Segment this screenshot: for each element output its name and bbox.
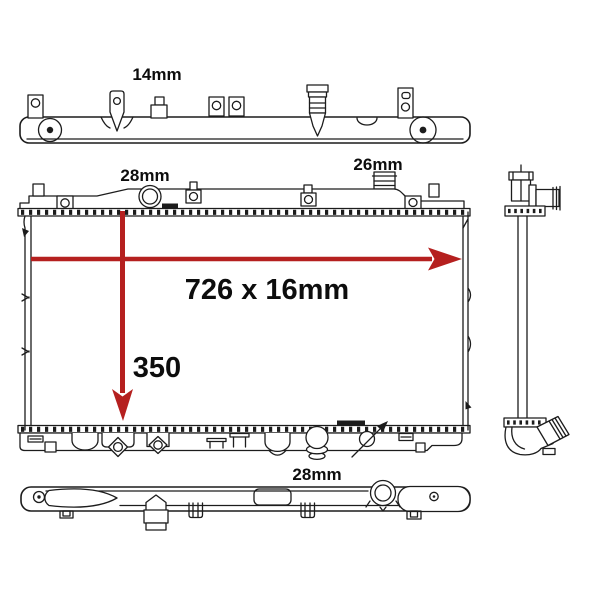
label-front-top-tank: 28mm [120,166,169,185]
bottom-view: 28mm [21,465,470,530]
mount-diamond [102,433,134,457]
bracket-with-hole [186,182,201,203]
end-tank-bottom-view [398,487,470,512]
tank-tab [416,443,425,452]
label-core-height: 350 [133,352,181,384]
front-top-tank [20,172,464,212]
slide-clip [60,511,73,518]
dimension-arrow-horizontal [31,248,462,271]
tank-tab [45,442,56,452]
label-front-inlet: 26mm [353,155,402,174]
dimension-arrow-vertical [112,211,133,421]
side-view [504,165,569,455]
core-header-top [18,209,470,217]
bracket-with-slot-and-hole [398,88,413,118]
stud [151,97,167,118]
core-header-bottom [18,421,470,434]
label-top-view-fitting: 14mm [132,65,181,84]
radiator-technical-drawing: 14mm [0,0,600,600]
filler-cap [139,186,161,208]
bracket-with-hole [405,196,421,209]
tank-tab [33,184,44,196]
top-view: 14mm [20,65,470,143]
bracket-with-hole [301,185,316,206]
side-bracket-left [24,216,25,430]
drain-fitting [543,449,555,455]
top-flange [505,206,545,216]
diagram-canvas: 14mm [0,0,600,600]
bracket-with-hole [209,97,224,116]
label-core-dimensions: 726 x 16mm [185,274,349,306]
tank-cutout [72,433,98,450]
side-bracket-right [463,212,471,430]
bracket-with-hole [229,97,244,116]
core-edge-profile [518,216,527,418]
radiator-core [22,212,472,430]
bracket-with-hole [28,95,43,118]
outlet-pipe [306,427,328,460]
hanging-tab [101,91,133,131]
slide-clip [407,511,421,519]
label-bottom-view-tank: 28mm [292,465,341,484]
tank-cutout [265,433,290,455]
tank-tab [429,184,439,197]
front-view: 28mm 26mm [18,155,472,459]
